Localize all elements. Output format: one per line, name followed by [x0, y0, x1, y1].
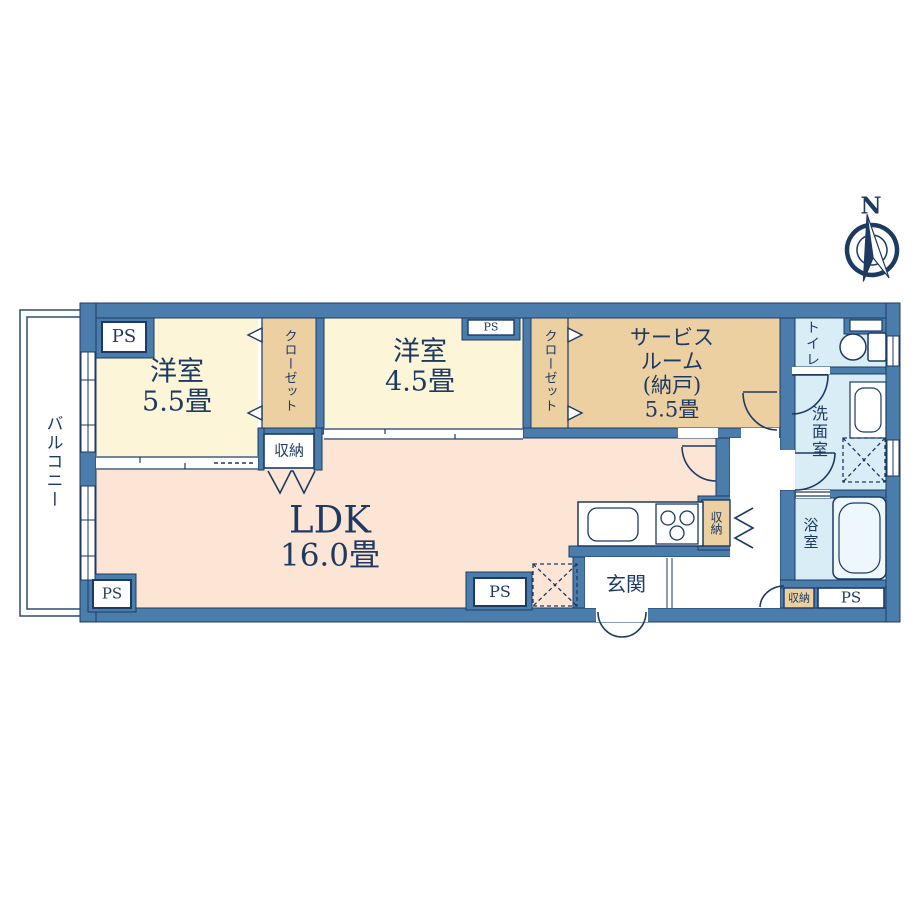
bedroom1-name-label: 洋室 — [150, 359, 204, 386]
ps-label-bottom-center: PS — [489, 584, 511, 600]
toilet-label: トイレ — [805, 320, 819, 368]
ps-label-bottom-right: PS — [841, 591, 861, 606]
ldk-size-label: 16.0畳 — [280, 541, 380, 572]
floor-plan-page: N バルコニー 洋室 5.5畳 洋室 4.5畳 サービス ルーム (納戸) 5.… — [0, 0, 920, 920]
service-room-label-2: ルーム — [641, 352, 703, 373]
storage1-label: 収納 — [274, 444, 304, 459]
ps-label-bedroom1: PS — [112, 328, 136, 346]
ldk-name-label: LDK — [289, 502, 371, 539]
compass-north-label: N — [860, 195, 881, 218]
ps-label-bottom-left: PS — [102, 587, 122, 602]
kitchen-storage-label: 収納 — [710, 511, 722, 535]
floor-plan-drawing — [0, 0, 920, 920]
closet2-label: クローゼット — [543, 329, 556, 413]
vanity-icon — [850, 382, 886, 438]
bedroom1-size-label: 5.5畳 — [142, 389, 212, 416]
storage2-label: 収納 — [788, 593, 810, 604]
washroom-label: 洗面室 — [810, 405, 826, 459]
washroom-window — [887, 440, 899, 476]
service-room-label-3: (納戸) — [643, 376, 701, 397]
toilet-window — [887, 336, 899, 366]
bathroom-label: 浴室 — [803, 517, 818, 551]
bedroom2-name-label: 洋室 — [393, 339, 447, 366]
bedroom2-size-label: 4.5畳 — [385, 369, 455, 396]
compass-icon — [842, 211, 901, 283]
kitchen-sink — [588, 508, 638, 541]
ps-label-bedroom2: PS — [484, 322, 499, 333]
kitchen — [578, 502, 703, 546]
entrance-label: 玄関 — [606, 574, 646, 594]
service-room-label-1: サービス — [630, 328, 714, 349]
toilet-shelf — [850, 320, 882, 331]
ldk-window — [81, 486, 95, 580]
balcony-label: バルコニー — [44, 415, 61, 510]
closet1-label: クローゼット — [283, 329, 296, 413]
bedroom1-window — [81, 352, 95, 452]
service-room-label-4: 5.5畳 — [645, 400, 699, 421]
bathtub-icon — [833, 497, 886, 579]
